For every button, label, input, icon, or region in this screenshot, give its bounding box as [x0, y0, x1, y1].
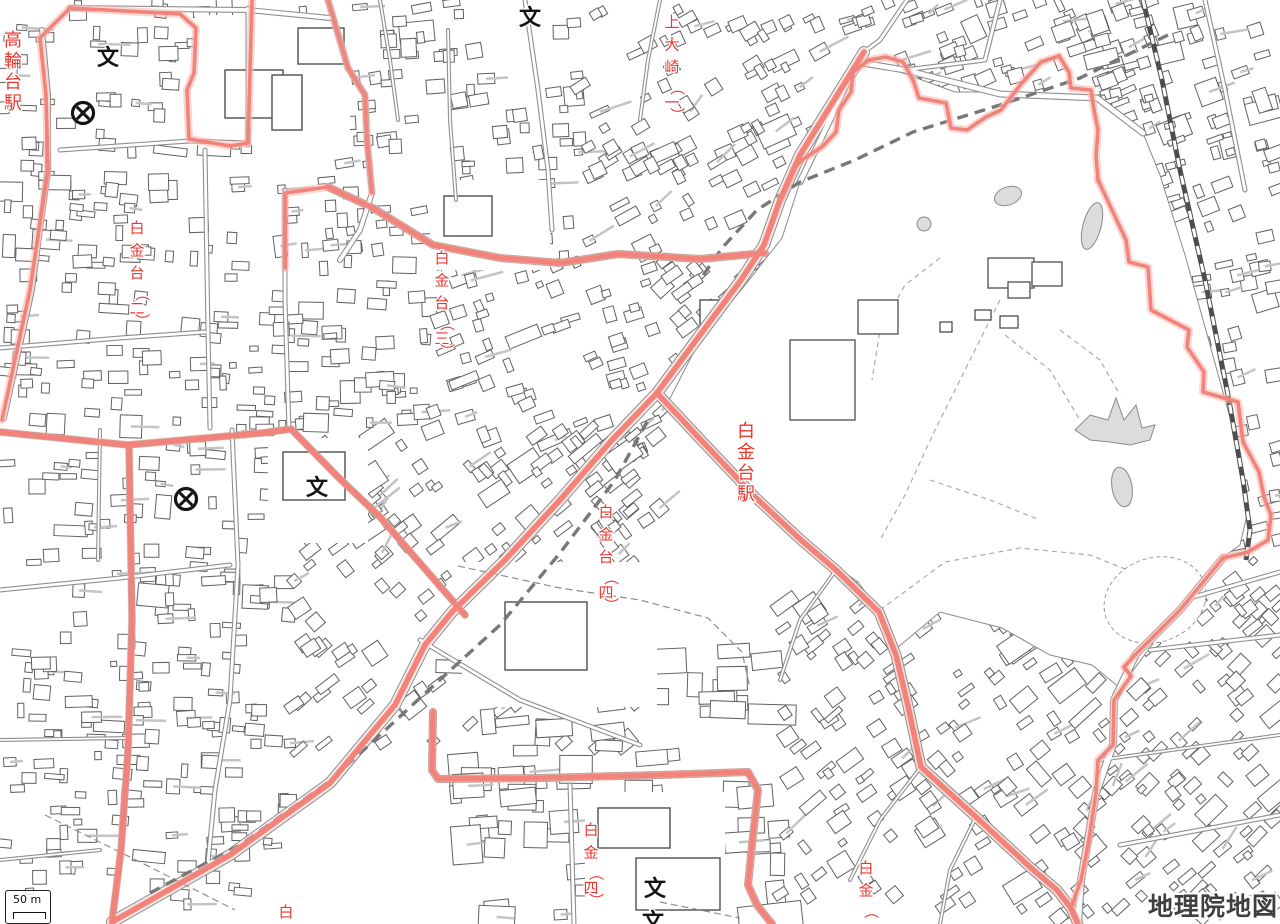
- svg-text:台: 台: [4, 72, 22, 93]
- police-station-icon: [73, 103, 94, 124]
- svg-text:（: （: [862, 904, 880, 919]
- school-icon: 文: [306, 475, 329, 501]
- scale-bar: 50 m: [5, 890, 51, 924]
- svg-text:金: 金: [858, 882, 873, 900]
- scale-label: 50 m: [13, 893, 41, 906]
- svg-text:高: 高: [4, 30, 22, 51]
- police-station-icon: [176, 489, 197, 510]
- svg-text:台: 台: [434, 294, 449, 312]
- svg-text:金: 金: [434, 272, 449, 290]
- scale-line: [13, 912, 46, 919]
- svg-text:白: 白: [129, 219, 144, 237]
- svg-text:白: 白: [598, 503, 613, 521]
- svg-text:上: 上: [664, 13, 679, 31]
- svg-text:駅: 駅: [4, 93, 22, 114]
- svg-text:台: 台: [129, 264, 144, 282]
- svg-text:金: 金: [598, 526, 613, 544]
- svg-text:白: 白: [737, 421, 755, 442]
- school-icon: 文: [644, 876, 667, 902]
- station-label: 高輪台駅: [4, 30, 22, 114]
- svg-text:輪: 輪: [4, 51, 22, 72]
- school-icon: 文: [519, 5, 542, 31]
- svg-text:駅: 駅: [737, 484, 755, 505]
- svg-text:崎: 崎: [664, 58, 679, 76]
- svg-text:金: 金: [737, 442, 755, 463]
- school-icon: 文: [642, 909, 665, 924]
- map-canvas[interactable]: 文文文文文高輪台駅白金台駅上大崎（一）白金台（二）白金台（三）白金台（四）白金（…: [0, 0, 1280, 924]
- svg-text:白: 白: [858, 859, 873, 877]
- svg-text:金: 金: [129, 242, 144, 260]
- svg-text:大: 大: [664, 36, 679, 54]
- map-svg: 文文文文文高輪台駅白金台駅上大崎（一）白金台（二）白金台（三）白金台（四）白金（…: [0, 0, 1280, 924]
- svg-text:金: 金: [583, 844, 598, 862]
- svg-text:白: 白: [278, 903, 293, 921]
- station-label: 白金台駅: [737, 421, 755, 505]
- svg-text:）: ）: [438, 343, 456, 358]
- svg-text:）: ）: [602, 597, 620, 612]
- svg-text:白: 白: [434, 249, 449, 267]
- svg-text:台: 台: [737, 463, 755, 484]
- svg-text:白: 白: [583, 821, 598, 839]
- svg-text:）: ）: [668, 107, 686, 122]
- svg-text:）: ）: [587, 893, 605, 908]
- map-attribution[interactable]: 地理院地図: [1148, 887, 1278, 923]
- svg-text:台: 台: [598, 548, 613, 566]
- svg-text:）: ）: [133, 313, 151, 328]
- district-label: 白: [278, 903, 293, 921]
- school-icon: 文: [97, 45, 120, 71]
